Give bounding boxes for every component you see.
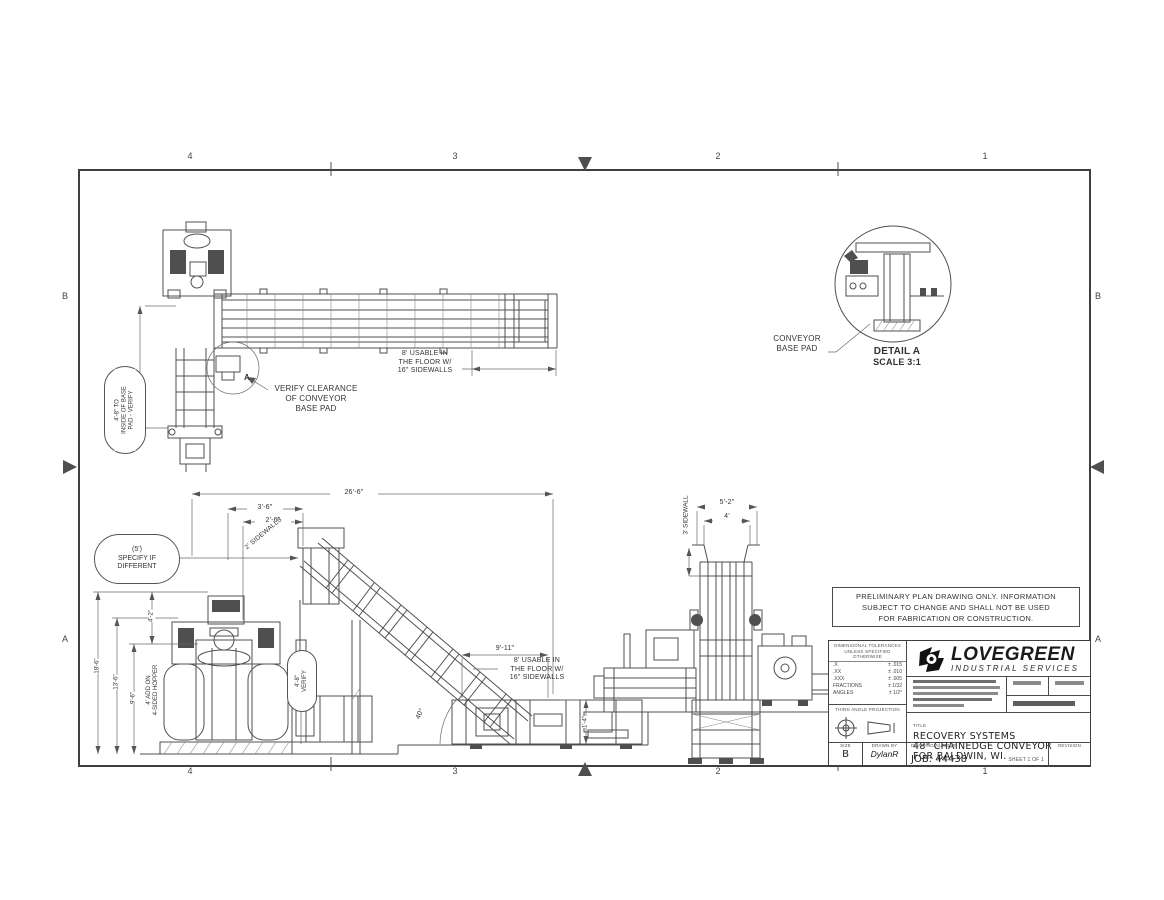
zone-right-B: B — [1091, 291, 1105, 301]
lovegreen-logo-icon — [917, 645, 945, 673]
zone-bottom-1: 1 — [978, 766, 992, 776]
dim-4ft: 4' — [713, 513, 741, 522]
zone-right-A: A — [1091, 634, 1105, 644]
company-subtitle: INDUSTRIAL SERVICES — [951, 664, 1079, 673]
zone-top-1: 1 — [978, 151, 992, 161]
preliminary-note: PRELIMINARY PLAN DRAWING ONLY. INFORMATI… — [832, 587, 1080, 627]
zone-top-4: 4 — [183, 151, 197, 161]
zone-bottom-4: 4 — [183, 766, 197, 776]
detail-base-pad-label: CONVEYOR BASE PAD — [760, 334, 834, 354]
plan-detail-marker: A — [240, 374, 254, 383]
projection-box: THIRD ANGLE PROJECTION — [829, 705, 907, 743]
dim-3-6: 3'-6" — [247, 504, 283, 513]
zone-top-3: 3 — [448, 151, 462, 161]
zone-bottom-3: 3 — [448, 766, 462, 776]
logo-row: LOVEGREEN INDUSTRIAL SERVICES — [907, 641, 1090, 677]
elev-verify-oval: 4'-8" VERIFY — [287, 650, 317, 712]
plan-view — [138, 222, 558, 472]
plan-usable-note: 8' USABLE IN THE FLOOR W/ 16" SIDEWALLS — [388, 350, 462, 376]
elev-addon-note: 4' ADD ON 4-SIDED HOPPER — [138, 682, 168, 698]
size-cell: SIZE B — [829, 743, 863, 765]
drawn-by-cell: DRAWN BY DylanR — [863, 743, 907, 765]
dim-pit-depth: 1'-4" — [566, 716, 606, 728]
third-angle-projection-icon — [832, 715, 904, 741]
job-number: JOB: 44438 — [911, 754, 967, 765]
endview-sidewall-label: 3' SIDEWALL — [656, 509, 716, 521]
dim-4-2: 4'-2" — [132, 610, 172, 622]
elev-usable-note: 8' USABLE IN THE FLOOR W/ 16" SIDEWALLS — [500, 657, 574, 683]
tolerance-box: DIMENSIONAL TOLERANCES UNLESS SPECIFIED … — [829, 641, 907, 705]
elevation-view — [93, 492, 700, 755]
revision-cell: REVISION — [1049, 743, 1090, 765]
dim-18-6: 18'-6" — [78, 660, 118, 672]
company-name: LOVEGREEN — [951, 645, 1079, 664]
title-row: TITLE RECOVERY SYSTEMS 48" CHAINEDGE CON… — [907, 713, 1090, 743]
sheet-info: SHEET 1 OF 1 — [1008, 758, 1044, 764]
zone-top-2: 2 — [711, 151, 725, 161]
dim-overall: 26'-6" — [330, 489, 378, 498]
proprietary-note-box — [907, 677, 1007, 713]
dim-9-11: 9'-11" — [480, 645, 530, 654]
zone-bottom-2: 2 — [711, 766, 725, 776]
detail-a-view — [828, 226, 951, 352]
approval-box — [1007, 677, 1090, 713]
elev-spec-balloon: (5') SPECIFY IF DIFFERENT — [94, 534, 180, 584]
dim-13-6: 13'-6" — [97, 676, 137, 688]
drawing-number-cell: DRAWING NUMBER JOB: 44438 SHEET 1 OF 1 — [907, 743, 1049, 765]
detail-scale: SCALE 3:1 — [860, 358, 934, 367]
end-view — [594, 505, 840, 765]
dim-5-2: 5'-2" — [705, 499, 749, 508]
title-block: DIMENSIONAL TOLERANCES UNLESS SPECIFIED … — [828, 640, 1091, 766]
plan-verify-note: VERIFY CLEARANCE OF CONVEYOR BASE PAD — [258, 384, 374, 414]
zone-left-B: B — [58, 291, 72, 301]
zone-left-A: A — [58, 634, 72, 644]
plan-balloon: 4'-8" TO INSIDE OF BASE PAD - VERIFY — [104, 366, 146, 454]
drawing-sheet: 4 3 2 1 4 3 2 1 B A B A 8' USABLE IN THE… — [0, 0, 1164, 900]
